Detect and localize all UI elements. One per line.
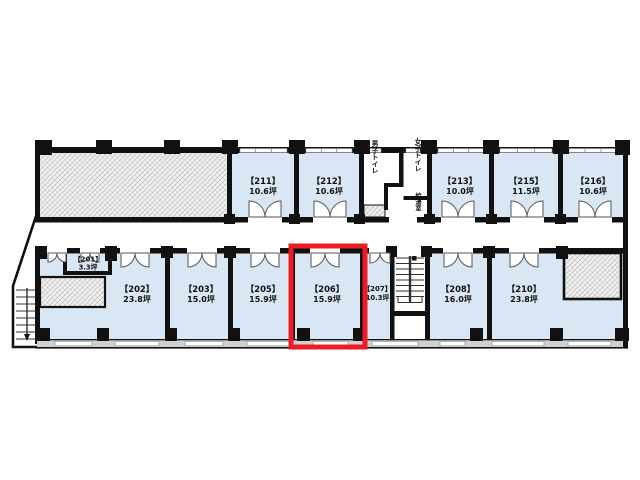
svg-text:【203】: 【203】: [184, 284, 218, 294]
svg-text:【213】: 【213】: [443, 176, 477, 186]
label-mens-toilet: 男子トイレ: [370, 140, 379, 174]
svg-text:【216】: 【216】: [576, 176, 610, 186]
svg-text:10.6坪: 10.6坪: [249, 186, 277, 196]
svg-text:【208】: 【208】: [441, 284, 475, 294]
svg-text:15.9坪: 15.9坪: [249, 294, 277, 304]
floor-plan-canvas: 【211】10.6坪 【212】10.6坪 【213】10.0坪 【215】11…: [0, 0, 640, 480]
svg-text:【202】: 【202】: [120, 284, 154, 294]
svg-text:【206】: 【206】: [310, 284, 344, 294]
svg-text:【201】: 【201】: [74, 256, 103, 264]
hatch-area-below-201: [40, 277, 105, 307]
label-kitchenette: 給湯室: [414, 192, 421, 212]
room-storage-topleft: [40, 153, 227, 217]
svg-text:15.9坪: 15.9坪: [313, 294, 341, 304]
floor-plan: 【211】10.6坪 【212】10.6坪 【213】10.0坪 【215】11…: [0, 0, 640, 480]
stair-arrow: [24, 334, 30, 341]
svg-text:16.0坪: 16.0坪: [444, 294, 472, 304]
svg-text:【215】: 【215】: [509, 176, 543, 186]
svg-text:【210】: 【210】: [507, 284, 541, 294]
stair-arrow: [412, 256, 417, 261]
svg-text:15.0坪: 15.0坪: [187, 294, 215, 304]
svg-text:10.3坪: 10.3坪: [366, 293, 390, 302]
svg-text:11.5坪: 11.5坪: [512, 186, 540, 196]
svg-text:23.8坪: 23.8坪: [510, 294, 538, 304]
stairs-left: [13, 213, 37, 347]
stairs-middle: [396, 256, 424, 303]
svg-text:【211】: 【211】: [246, 176, 280, 186]
svg-text:3.3坪: 3.3坪: [79, 263, 98, 272]
svg-text:10.6坪: 10.6坪: [315, 186, 343, 196]
svg-text:10.0坪: 10.0坪: [446, 186, 474, 196]
svg-text:【212】: 【212】: [312, 176, 346, 186]
svg-text:【205】: 【205】: [246, 284, 280, 294]
svg-text:10.6坪: 10.6坪: [579, 186, 607, 196]
hatch-area-in-210: [564, 253, 621, 299]
hatch-area-mens-toilet: [364, 205, 385, 217]
svg-text:23.8坪: 23.8坪: [123, 294, 151, 304]
label-womens-toilet: 女子トイレ: [413, 137, 421, 172]
